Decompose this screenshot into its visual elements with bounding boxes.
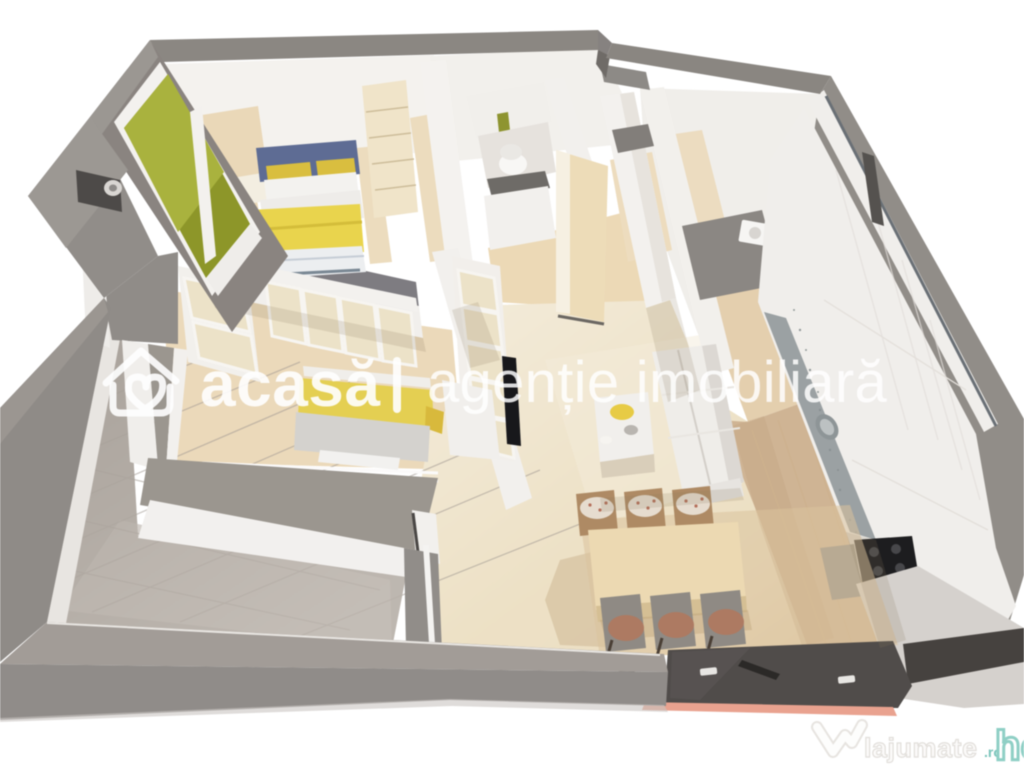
svg-text:lajumate: lajumate (864, 733, 978, 763)
svg-text:agenție imobiliară: agenție imobiliară (427, 350, 887, 415)
svg-text:ho: ho (995, 722, 1024, 768)
svg-text:acasă: acasă (200, 348, 380, 420)
